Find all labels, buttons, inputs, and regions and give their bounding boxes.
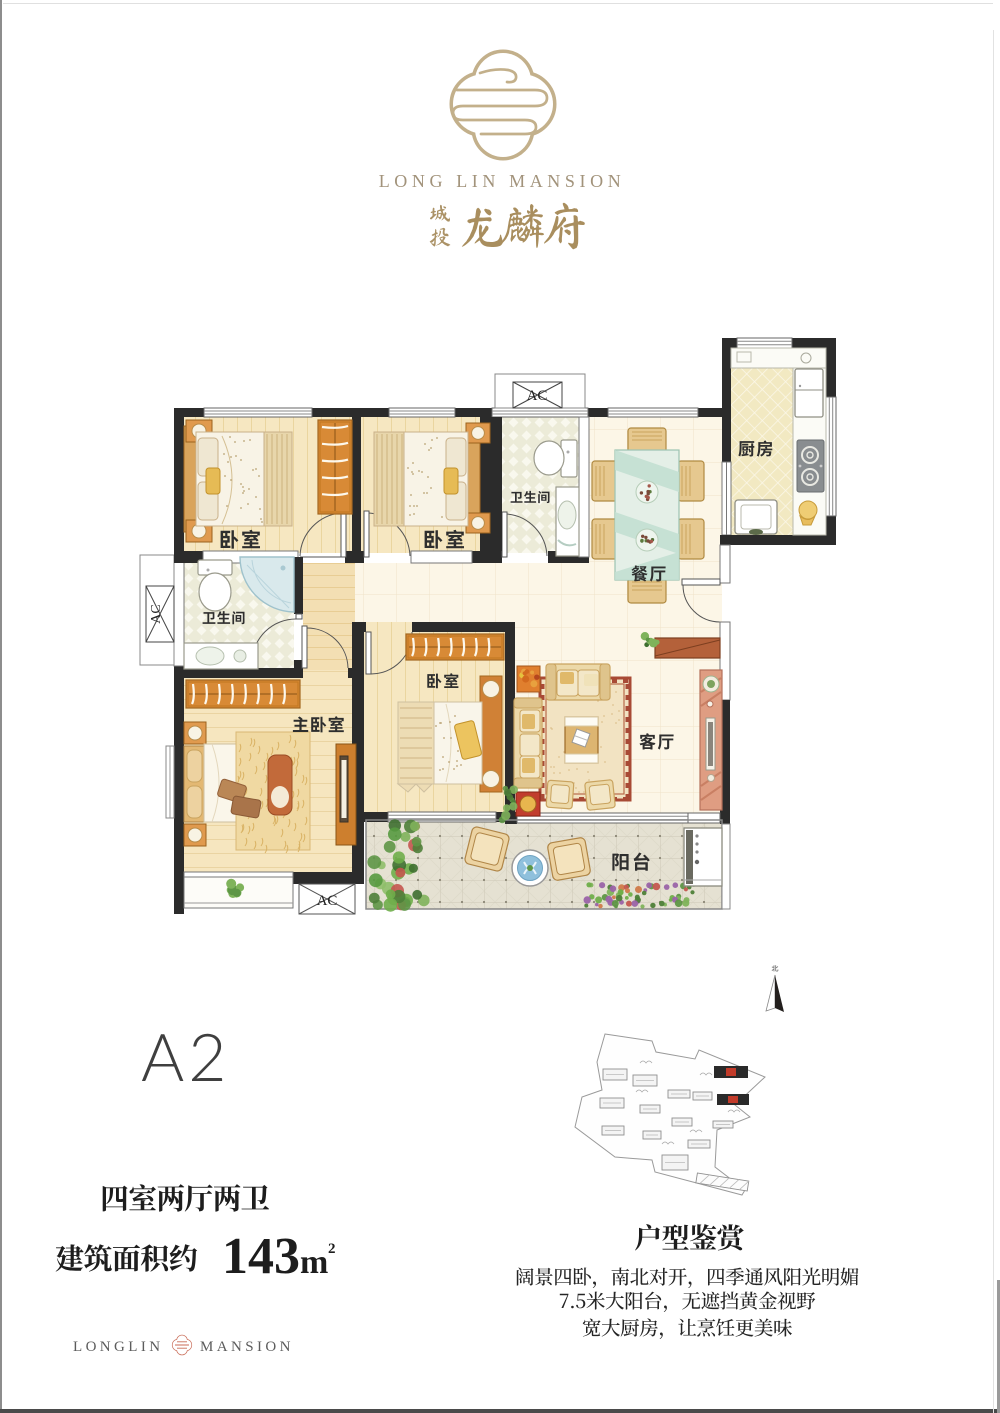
svg-text:LONGLIN: LONGLIN	[73, 1339, 163, 1355]
svg-text:143: 143	[222, 1228, 300, 1285]
svg-text:AC: AC	[149, 604, 164, 623]
svg-text:MANSION: MANSION	[200, 1339, 294, 1355]
svg-text:2: 2	[328, 1241, 336, 1257]
svg-text:m: m	[300, 1244, 328, 1281]
svg-text:LONG LIN MANSION: LONG LIN MANSION	[379, 171, 626, 191]
svg-text:AC: AC	[527, 388, 548, 404]
svg-text:AC: AC	[317, 893, 338, 909]
